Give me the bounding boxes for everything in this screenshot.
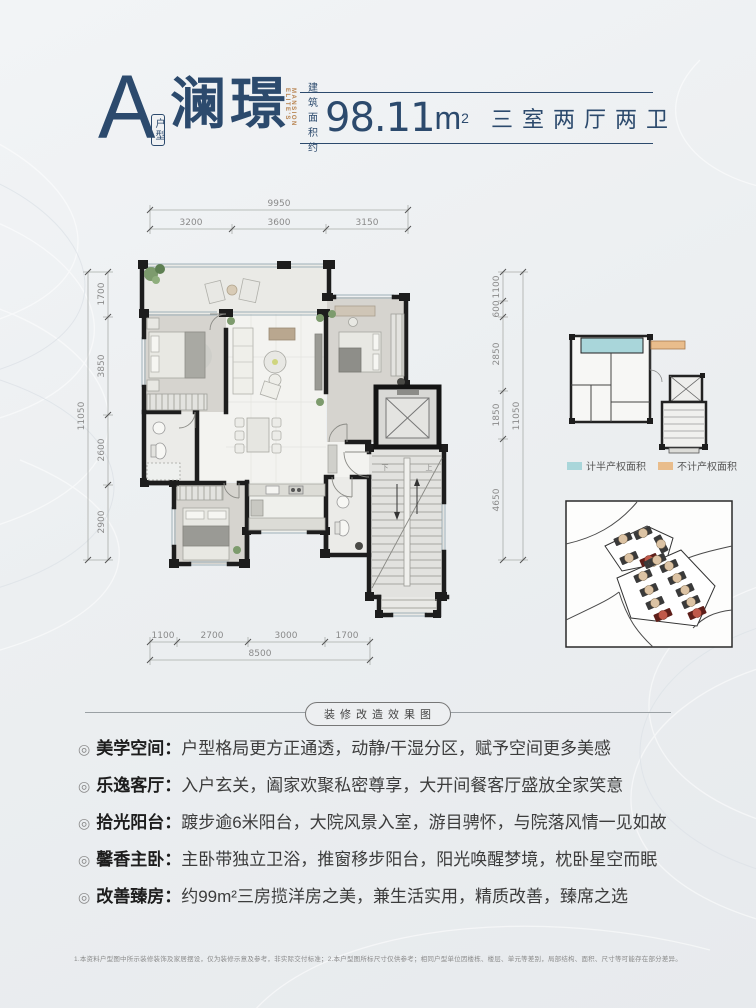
keyplan-excluded-area-zone: [651, 341, 685, 349]
dim-bottom-4: 1700: [336, 631, 359, 641]
area-value: 98.11: [325, 98, 435, 138]
feature-bullet-icon: ◎: [78, 775, 90, 797]
disclaimer-footnote: 1.本资料户型图中所示装修装饰及家居摆设，仅为装修示意及参考，非实际交付标准；2…: [38, 953, 718, 963]
feature-bullet-icon: ◎: [78, 738, 90, 760]
legend-swatch-excluded-area: [658, 462, 673, 470]
legend-item-half-area: 计半产权面积: [567, 458, 646, 473]
project-name: 澜璟: [170, 74, 290, 136]
legend-label-half-area: 计半产权面积: [586, 458, 646, 473]
keyplan-half-area-zone: [581, 338, 643, 353]
dim-bottom-3: 3000: [275, 631, 298, 641]
header-spec-bar: 建 筑 面积约 98.11 m 2 三室两厅两卫: [300, 92, 653, 144]
dim-bottom-2: 2700: [201, 631, 224, 641]
dim-left-2: 3850: [97, 354, 107, 377]
feature-list: ◎ 美学空间： 户型格局更方正通透，动静/干湿分区，赋予空间更多美感 ◎ 乐逸客…: [78, 738, 683, 923]
feature-title: 乐逸客厅: [96, 775, 164, 797]
feature-description: 踱步逾6米阳台，大院风景入室，游目骋怀，与院落风情一见如故: [181, 812, 666, 834]
staircase: 下 上: [372, 455, 442, 612]
feature-colon: ：: [164, 775, 181, 797]
dim-bottom-1: 1100: [152, 631, 175, 641]
dim-left-4: 2900: [97, 510, 107, 533]
dim-right-3: 2850: [492, 342, 502, 365]
dim-left-3: 2600: [97, 438, 107, 461]
feature-bullet-icon: ◎: [78, 886, 90, 908]
dim-top-total: 9950: [268, 199, 291, 209]
site-plan: [565, 500, 733, 648]
feature-row: ◎ 拾光阳台： 踱步逾6米阳台，大院风景入室，游目骋怀，与院落风情一见如故: [78, 812, 683, 834]
room-configuration: 三室两厅两卫: [491, 102, 677, 134]
unit-type-label: 户型: [151, 114, 165, 146]
feature-colon: ：: [164, 812, 181, 834]
key-plan: [563, 330, 735, 456]
feature-title: 美学空间: [96, 738, 164, 760]
feature-title: 改善臻房: [96, 886, 164, 908]
legend-label-excluded-area: 不计产权面积: [677, 458, 737, 473]
feature-description: 主卧带独立卫浴，推窗移步阳台，阳光唤醒梦境，枕卧星空而眠: [181, 849, 657, 871]
feature-title: 馨香主卧: [96, 849, 164, 871]
dim-right-5: 4650: [492, 488, 502, 511]
unit-letter: A: [98, 62, 155, 152]
area-label-line1: 建 筑: [308, 81, 319, 111]
feature-row: ◎ 乐逸客厅： 入户玄关，阖家欢聚私密尊享，大开间餐客厅盛放全家笑意: [78, 775, 683, 797]
dim-top-3: 3150: [356, 218, 379, 228]
feature-bullet-icon: ◎: [78, 812, 90, 834]
legend-item-excluded-area: 不计产权面积: [658, 458, 737, 473]
area-label: 建 筑 面积约: [308, 81, 319, 156]
keyplan-stairs: [662, 402, 706, 448]
keyplan-legend: 计半产权面积 不计产权面积: [567, 458, 737, 473]
feature-description: 约99m²三房揽洋房之美，兼生活实用，精质改善，臻席之选: [181, 886, 628, 908]
dim-top-2: 3600: [268, 218, 291, 228]
feature-colon: ：: [164, 738, 181, 760]
divider-label: 装修改造效果图: [305, 702, 451, 726]
dim-left-total: 11050: [77, 401, 87, 430]
feature-colon: ：: [164, 886, 181, 908]
feature-title: 拾光阳台: [96, 812, 164, 834]
legend-swatch-half-area: [567, 462, 582, 470]
floor-plan: 下 上: [129, 252, 481, 620]
feature-row: ◎ 美学空间： 户型格局更方正通透，动静/干湿分区，赋予空间更多美感: [78, 738, 683, 760]
dim-right-4: 1850: [492, 403, 502, 426]
area-unit: m: [435, 102, 462, 134]
feature-description: 入户玄关，阖家欢聚私密尊享，大开间餐客厅盛放全家笑意: [181, 775, 623, 797]
feature-description: 户型格局更方正通透，动静/干湿分区，赋予空间更多美感: [181, 738, 611, 760]
stair-down-label: 下: [382, 464, 389, 472]
feature-row: ◎ 馨香主卧： 主卧带独立卫浴，推窗移步阳台，阳光唤醒梦境，枕卧星空而眠: [78, 849, 683, 871]
dim-left-1: 1700: [97, 282, 107, 305]
elevator: [376, 387, 439, 447]
feature-bullet-icon: ◎: [78, 849, 90, 871]
floorplan-flyer-page: A 户型 澜璟 ELITE'S MANSION 建 筑 面积约 98.11 m …: [0, 0, 756, 1008]
feature-row: ◎ 改善臻房： 约99m²三房揽洋房之美，兼生活实用，精质改善，臻席之选: [78, 886, 683, 908]
dim-bottom-total: 8500: [249, 649, 272, 659]
feature-colon: ：: [164, 849, 181, 871]
dim-right-2: 600: [492, 300, 502, 317]
project-name-english: ELITE'S MANSION: [284, 88, 296, 150]
dim-right-1: 1100: [492, 275, 502, 298]
dim-top-1: 3200: [180, 218, 203, 228]
stair-up-label: 上: [426, 463, 433, 472]
area-label-line2: 面积约: [308, 111, 319, 156]
section-divider: 装修改造效果图: [85, 712, 671, 713]
area-superscript: 2: [461, 110, 469, 126]
dim-right-total: 11050: [512, 401, 522, 430]
